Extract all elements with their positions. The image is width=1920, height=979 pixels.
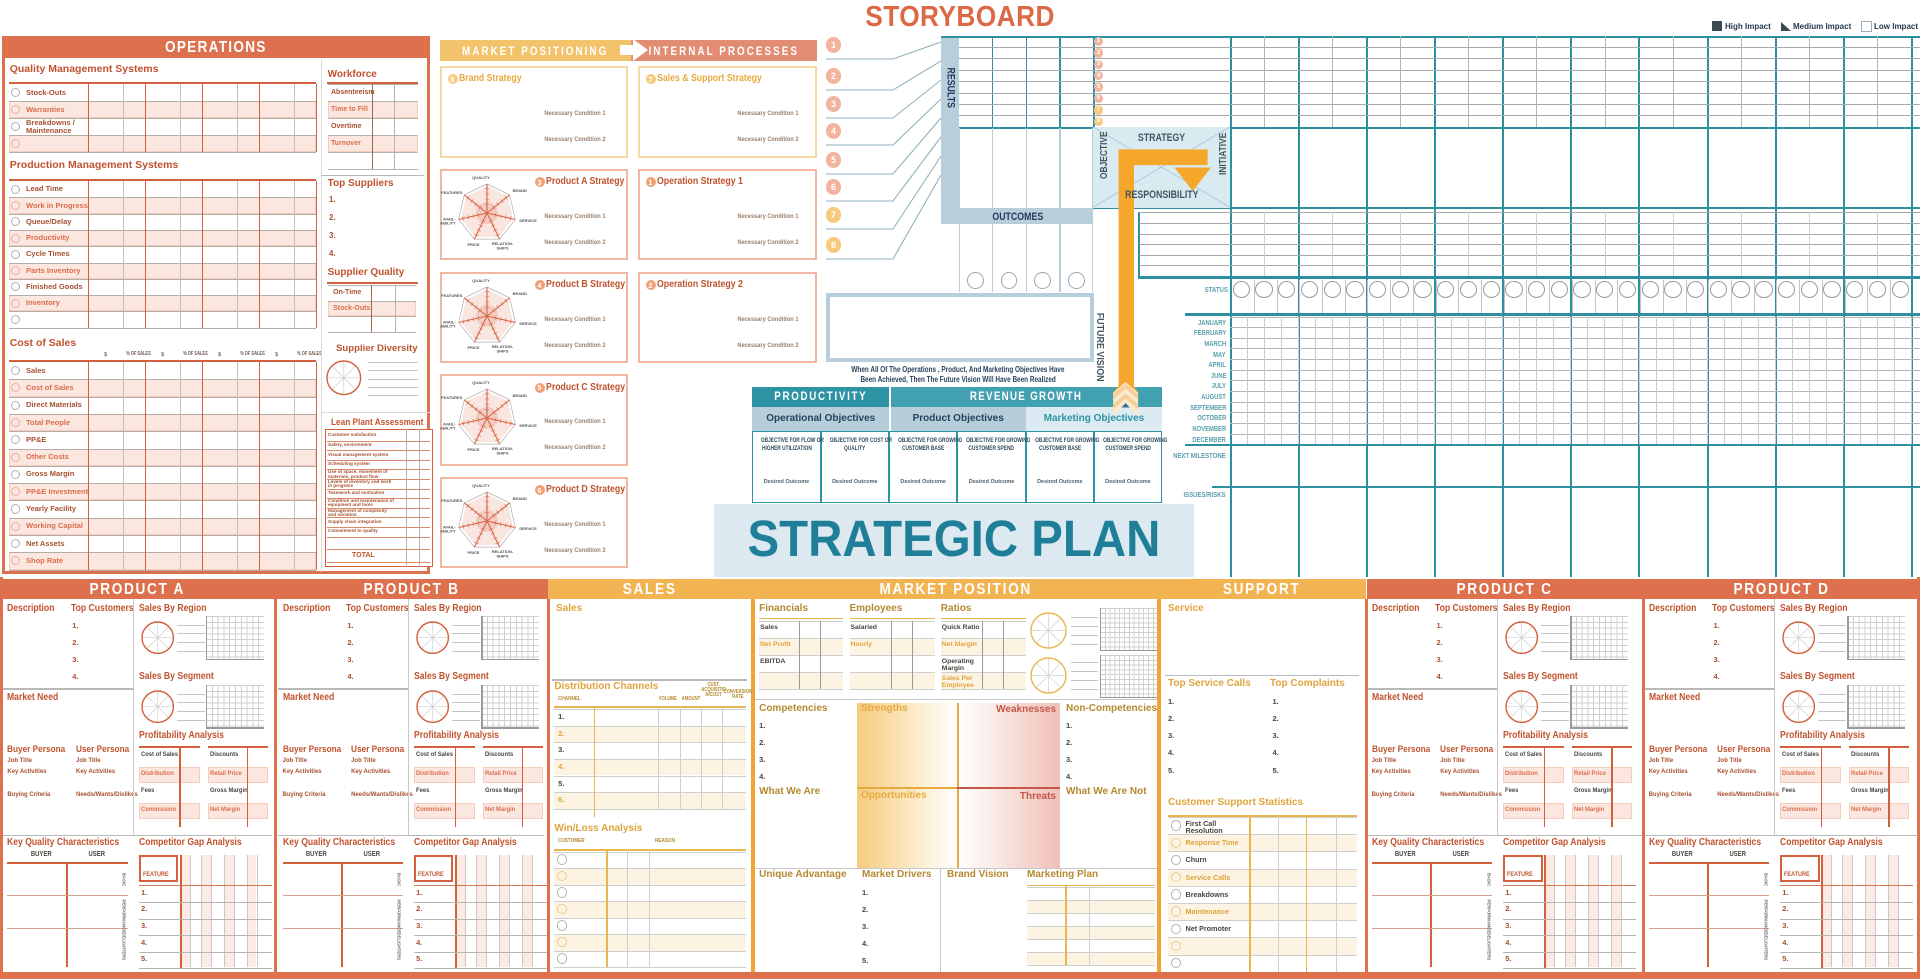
svg-text:BRAND: BRAND — [513, 291, 528, 296]
svg-text:FEATURES: FEATURES — [441, 293, 463, 298]
svg-text:ABILITY: ABILITY — [440, 323, 456, 328]
svg-text:BRAND: BRAND — [513, 496, 528, 501]
svg-text:QUALITY: QUALITY — [472, 483, 490, 488]
svg-text:PRICE: PRICE — [467, 242, 480, 247]
svg-text:ABILITY: ABILITY — [440, 426, 456, 431]
svg-text:FEATURES: FEATURES — [441, 395, 463, 400]
svg-text:BRAND: BRAND — [513, 393, 528, 398]
svg-text:FEATURES: FEATURES — [441, 498, 463, 503]
svg-text:BRAND: BRAND — [513, 188, 528, 193]
svg-text:SHIPS: SHIPS — [496, 553, 508, 558]
svg-text:PRICE: PRICE — [467, 550, 480, 555]
svg-text:QUALITY: QUALITY — [472, 380, 490, 385]
svg-text:PRICE: PRICE — [467, 345, 480, 350]
svg-text:FEATURES: FEATURES — [441, 190, 463, 195]
svg-text:QUALITY: QUALITY — [472, 278, 490, 283]
svg-text:SHIPS: SHIPS — [496, 348, 508, 353]
svg-text:QUALITY: QUALITY — [472, 175, 490, 180]
svg-text:ABILITY: ABILITY — [440, 220, 456, 225]
svg-text:PRICE: PRICE — [467, 447, 480, 452]
svg-text:ABILITY: ABILITY — [440, 528, 456, 533]
svg-text:SHIPS: SHIPS — [496, 450, 508, 455]
svg-text:SHIPS: SHIPS — [496, 245, 508, 250]
